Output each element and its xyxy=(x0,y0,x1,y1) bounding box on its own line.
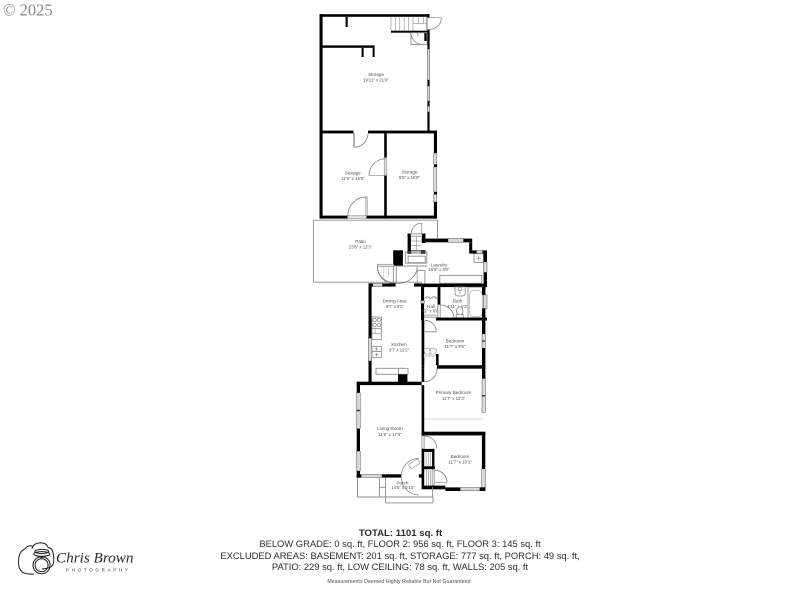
svg-text:11'6" x 15'8": 11'6" x 15'8" xyxy=(341,176,365,181)
svg-text:© 2025: © 2025 xyxy=(3,1,53,20)
svg-text:Bedroom: Bedroom xyxy=(451,454,470,459)
svg-text:EXCLUDED AREAS: BASEMENT: 201: EXCLUDED AREAS: BASEMENT: 201 sq. ft, ST… xyxy=(220,550,579,561)
svg-text:Bath: Bath xyxy=(453,298,463,303)
svg-text:23'8" x 12'3": 23'8" x 12'3" xyxy=(349,245,373,250)
svg-text:Chris Brown: Chris Brown xyxy=(56,550,134,567)
svg-text:Patio: Patio xyxy=(355,239,366,244)
svg-text:Storage: Storage xyxy=(401,170,418,175)
svg-text:Storage: Storage xyxy=(368,72,385,77)
svg-text:11'7" x 9'6": 11'7" x 9'6" xyxy=(445,344,466,349)
svg-text:16'8" x 8'0": 16'8" x 8'0" xyxy=(428,267,450,272)
svg-text:9'5" x 15'8": 9'5" x 15'8" xyxy=(399,175,421,180)
svg-text:11'7" x 10'1": 11'7" x 10'1" xyxy=(448,459,472,464)
svg-text:Bedroom: Bedroom xyxy=(446,338,465,343)
svg-text:Kitchen: Kitchen xyxy=(391,342,407,347)
svg-text:Measurements Deemed Highly Rel: Measurements Deemed Highly Reliable But … xyxy=(327,579,470,585)
svg-text:9'7' x 12'2": 9'7' x 12'2" xyxy=(389,348,410,353)
svg-text:11'7" x 12'3": 11'7" x 12'3" xyxy=(442,396,466,401)
svg-text:Primary Bedroom: Primary Bedroom xyxy=(436,390,472,395)
svg-text:9'7' x 6'0': 9'7' x 6'0' xyxy=(386,304,404,309)
svg-text:11'9" x 17'3": 11'9" x 17'3" xyxy=(378,432,402,437)
svg-text:Dining Area: Dining Area xyxy=(383,298,407,303)
svg-text:PATIO: 229 sq. ft, LOW CEILING: PATIO: 229 sq. ft, LOW CEILING: 78 sq. f… xyxy=(272,561,529,572)
svg-text:Living Room: Living Room xyxy=(377,426,403,431)
svg-text:PHOTOGRAPHY: PHOTOGRAPHY xyxy=(66,568,131,573)
svg-text:BELOW GRADE: 0 sq. ft, FLOOR 2: BELOW GRADE: 0 sq. ft, FLOOR 2: 956 sq. … xyxy=(259,538,541,549)
svg-text:Storage: Storage xyxy=(345,171,362,176)
svg-text:19'11" x 21'9": 19'11" x 21'9" xyxy=(363,78,389,83)
svg-text:14'6" x 5'10": 14'6" x 5'10" xyxy=(391,485,415,490)
